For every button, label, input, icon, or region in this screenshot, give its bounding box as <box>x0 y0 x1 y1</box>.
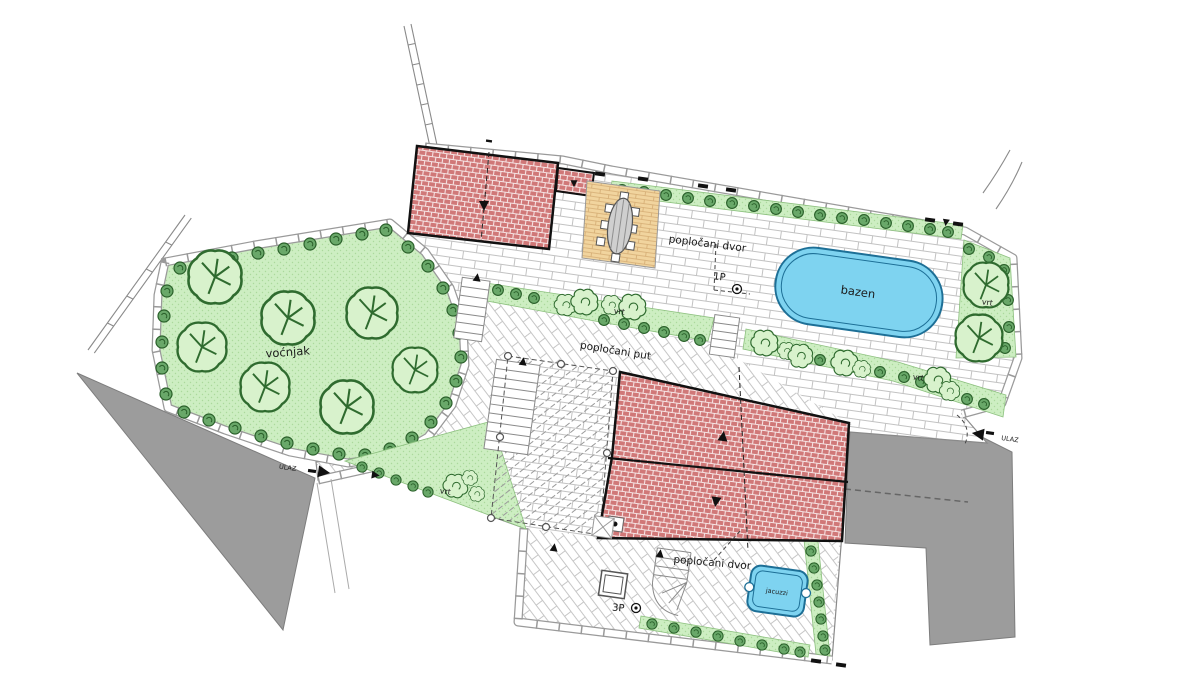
garden-right: vrt <box>956 240 1016 361</box>
planter-box <box>598 570 627 598</box>
garden-middle-label: vrt <box>613 306 625 316</box>
site-plan-svg: vrt vrt vrt vrt <box>0 0 1200 675</box>
terrace-dining <box>582 181 660 268</box>
site-plan: vrt vrt vrt vrt <box>0 0 1200 675</box>
stairs-pool <box>709 315 739 358</box>
parking-lower-label: 3P <box>612 602 625 614</box>
crossed-box <box>592 516 615 539</box>
garden-entrance-label: vrt <box>439 486 451 496</box>
garden-right-label: vrt <box>981 297 993 307</box>
jacuzzi: jacuzzi <box>742 564 814 619</box>
building-northwest-roof <box>408 146 558 249</box>
parking-upper-label: 1P <box>712 271 726 283</box>
garden-south-label: vrt <box>912 372 924 382</box>
